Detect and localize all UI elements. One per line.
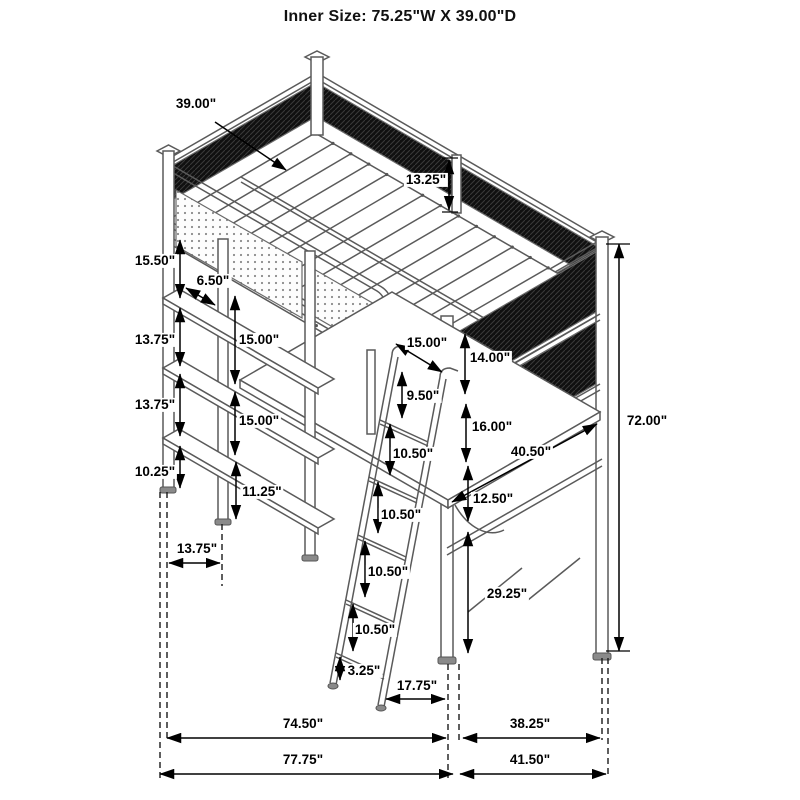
- dimension-label: 10.50": [353, 623, 397, 637]
- dimension-label: 10.50": [366, 565, 410, 579]
- dimension-label: 41.50": [508, 753, 552, 767]
- dimension-label: 14.00": [468, 351, 512, 365]
- dimension-label: 13.75": [133, 333, 177, 347]
- dimension-label: 3.25": [346, 664, 383, 678]
- dimension-label: 77.75": [281, 753, 325, 767]
- back-post: [311, 57, 323, 135]
- diagram-canvas: Inner Size: 75.25"W X 39.00"D: [0, 0, 800, 800]
- dimension-label: 16.00": [470, 420, 514, 434]
- dimension-label: 12.50": [471, 492, 515, 506]
- dimension-label: 13.75": [175, 542, 219, 556]
- dimension-label: 10.50": [391, 447, 435, 461]
- dimension-label: 11.25": [240, 485, 283, 499]
- dimension-label: 15.00": [405, 336, 449, 350]
- dimension-label: 15.00": [237, 333, 281, 347]
- dimension-label: 17.75": [395, 679, 439, 693]
- dimension-label: 74.50": [281, 717, 325, 731]
- ladder-foot: [328, 683, 338, 689]
- dimension-label: 39.00": [174, 97, 218, 111]
- dimension-label: 6.50": [195, 274, 232, 288]
- dimension-label: 72.00": [625, 414, 669, 428]
- dimension-label: 29.25": [485, 587, 529, 601]
- dimension-label: 38.25": [508, 717, 552, 731]
- mid-rail-post: [452, 155, 461, 213]
- right-rear-leg: [596, 237, 608, 656]
- desk-support-post: [367, 350, 375, 434]
- dimension-label: 13.75": [133, 398, 177, 412]
- dimension-label: 15.00": [237, 414, 281, 428]
- dimension-label: 10.50": [379, 508, 423, 522]
- dimension-label: 13.25": [404, 173, 448, 187]
- dimension-label: 15.50": [133, 254, 177, 268]
- dimension-label: 9.50": [405, 389, 442, 403]
- ladder-foot: [376, 705, 386, 711]
- dimension-label: 40.50": [509, 445, 553, 459]
- leg-brace: [528, 558, 580, 600]
- dimension-label: 10.25": [133, 465, 177, 479]
